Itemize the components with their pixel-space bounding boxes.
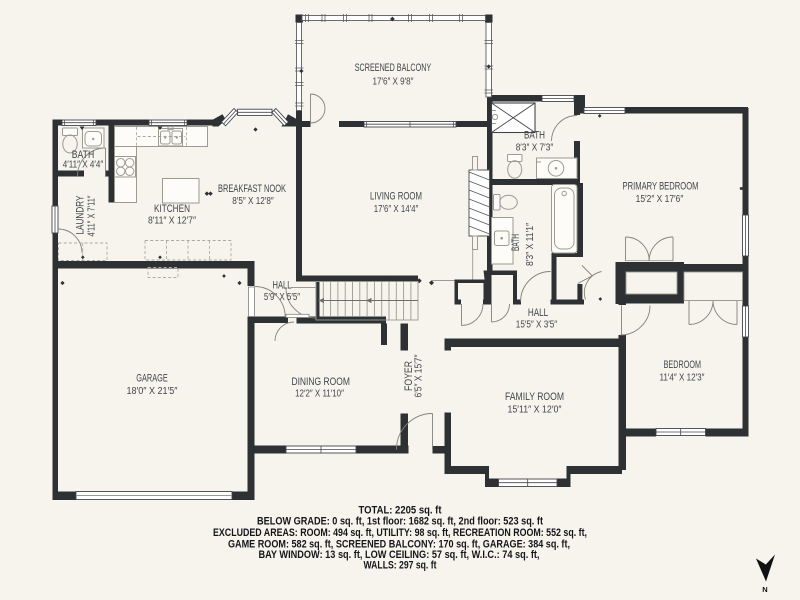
svg-text:11′4″ X 12′3″: 11′4″ X 12′3″ bbox=[660, 373, 705, 384]
svg-text:5′9″ X 5′5″: 5′9″ X 5′5″ bbox=[264, 292, 301, 303]
svg-text:17′6″ X 9′8″: 17′6″ X 9′8″ bbox=[373, 77, 414, 88]
svg-text:8′5″ X 12′8″: 8′5″ X 12′8″ bbox=[232, 196, 274, 207]
svg-text:6′5″ X 15′7″: 6′5″ X 15′7″ bbox=[414, 354, 425, 397]
svg-text:BEDROOM: BEDROOM bbox=[664, 359, 701, 371]
svg-text:DINING ROOM: DINING ROOM bbox=[291, 376, 350, 388]
svg-text:8′11″ X 12′7″: 8′11″ X 12′7″ bbox=[148, 216, 196, 227]
svg-text:SCREENED BALCONY: SCREENED BALCONY bbox=[355, 62, 432, 74]
svg-text:15′2″ X 17′6″: 15′2″ X 17′6″ bbox=[636, 194, 684, 205]
svg-text:4′11″ X 7′11″: 4′11″ X 7′11″ bbox=[87, 195, 98, 236]
svg-text:8′3″ X 11′1″: 8′3″ X 11′1″ bbox=[525, 223, 536, 266]
svg-text:GARAGE: GARAGE bbox=[136, 372, 168, 384]
svg-text:HALL: HALL bbox=[528, 307, 548, 319]
svg-text:EXCLUDED AREAS: ROOM: 494 sq.: EXCLUDED AREAS: ROOM: 494 sq. ft, UTILIT… bbox=[213, 527, 587, 539]
svg-text:LAUNDRY: LAUNDRY bbox=[75, 196, 87, 235]
svg-text:WALLS: 297 sq. ft: WALLS: 297 sq. ft bbox=[364, 560, 437, 572]
svg-text:15′5″ X 3′5″: 15′5″ X 3′5″ bbox=[516, 320, 558, 331]
svg-text:BREAKFAST NOOK: BREAKFAST NOOK bbox=[218, 183, 287, 195]
svg-text:BATH: BATH bbox=[510, 234, 522, 251]
svg-text:12′2″ X 11′10″: 12′2″ X 11′10″ bbox=[295, 389, 344, 400]
svg-text:18′0″ X 21′5″: 18′0″ X 21′5″ bbox=[127, 386, 178, 397]
svg-text:LIVING ROOM: LIVING ROOM bbox=[370, 191, 422, 203]
svg-text:15′11″ X 12′0″: 15′11″ X 12′0″ bbox=[508, 404, 562, 415]
svg-text:KITCHEN: KITCHEN bbox=[154, 203, 190, 215]
svg-text:8′3″ X 7′3″: 8′3″ X 7′3″ bbox=[516, 142, 554, 153]
svg-text:17′6″ X 14′4″: 17′6″ X 14′4″ bbox=[374, 204, 419, 215]
svg-text:BATH: BATH bbox=[524, 130, 545, 142]
svg-text:N: N bbox=[762, 585, 767, 594]
svg-text:HALL: HALL bbox=[273, 280, 292, 292]
svg-text:FAMILY ROOM: FAMILY ROOM bbox=[505, 391, 564, 403]
svg-text:PRIMARY BEDROOM: PRIMARY BEDROOM bbox=[623, 181, 699, 193]
svg-text:BELOW GRADE: 0 sq. ft, 1st flo: BELOW GRADE: 0 sq. ft, 1st floor: 1682 s… bbox=[257, 516, 543, 528]
svg-text:4′11″ X 4′4″: 4′11″ X 4′4″ bbox=[63, 160, 104, 171]
